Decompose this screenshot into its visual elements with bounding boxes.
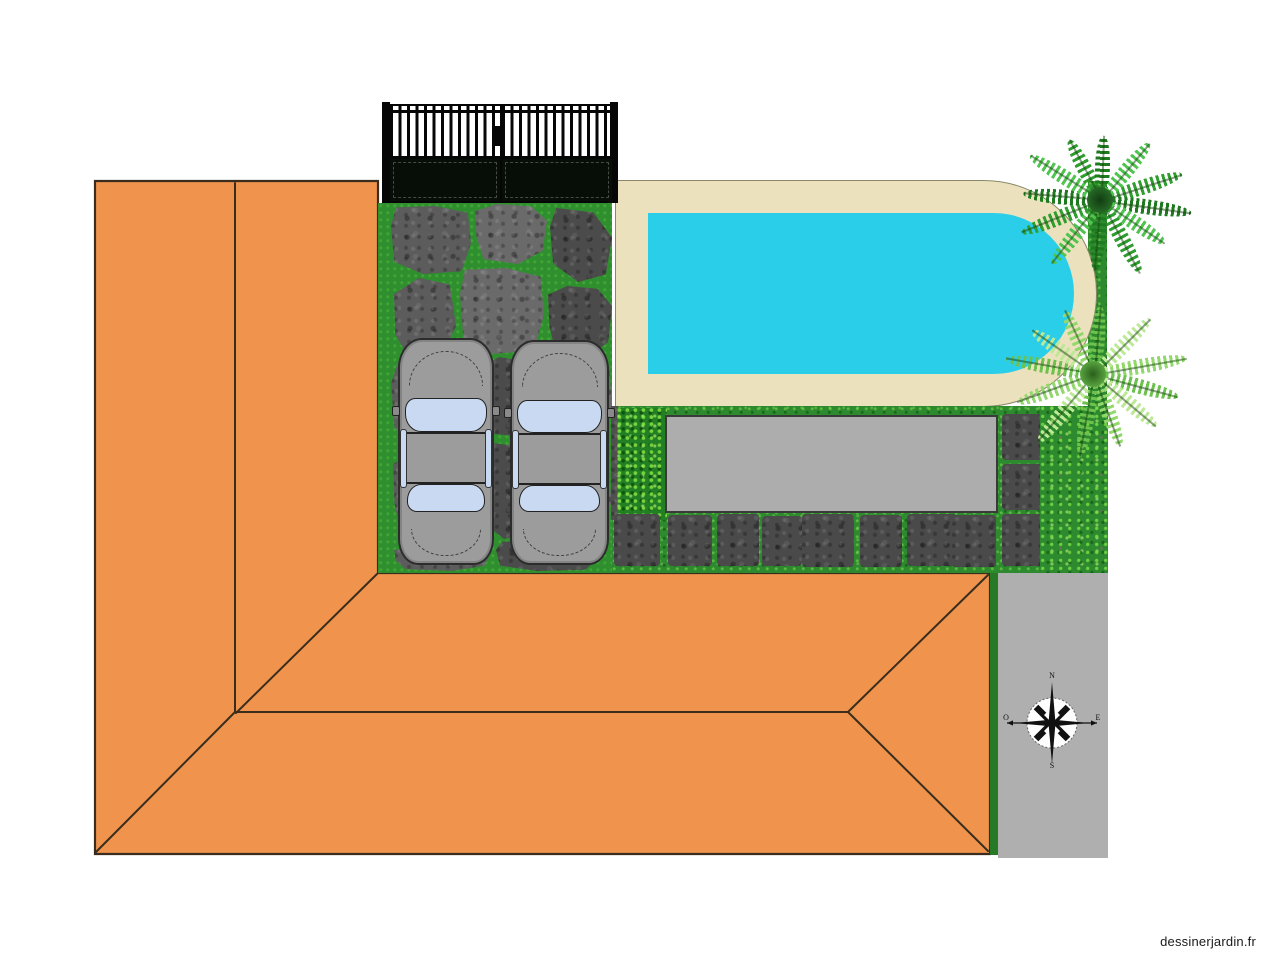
car-roof <box>407 432 486 484</box>
car-side-window <box>512 430 519 489</box>
gate-solid-panel <box>502 159 612 201</box>
stepping-stone <box>717 514 759 566</box>
gate-latch <box>494 126 505 146</box>
gate-bars <box>502 106 612 159</box>
car-roof <box>519 433 600 485</box>
flagstone <box>475 204 547 264</box>
car-windshield <box>517 400 602 434</box>
car-side-window <box>485 429 492 488</box>
gate-top-rail <box>388 110 612 113</box>
car-rear-window <box>407 484 486 511</box>
compass-south-label: S <box>1050 761 1054 768</box>
gate-solid-panel <box>390 159 500 201</box>
car-mirror <box>492 406 500 416</box>
stepping-stone <box>952 515 996 567</box>
hedge <box>617 408 667 520</box>
stepping-stone <box>907 514 957 566</box>
stepping-stone <box>802 514 854 567</box>
palm-trunk-top <box>1087 187 1113 213</box>
watermark: dessinerjardin.fr <box>1106 934 1256 949</box>
palm-tree-icon <box>1005 286 1195 478</box>
garden-plan: N S E O dessinerjardin.fr <box>0 0 1280 960</box>
palm-trunk-top <box>1080 361 1106 387</box>
car-side-window <box>400 429 407 488</box>
lawn-strip-right-of-house <box>990 573 998 855</box>
stepping-stone <box>668 515 712 566</box>
car-windshield <box>405 398 488 432</box>
terrace <box>665 415 998 513</box>
car-rear-window <box>519 485 600 512</box>
stepping-stone <box>1002 514 1044 566</box>
stepping-stone <box>860 515 902 567</box>
gate-left-panel <box>388 104 502 203</box>
gate-bars <box>390 106 500 159</box>
car-mirror <box>504 408 512 418</box>
compass-rose-icon: N S E O <box>1003 670 1101 768</box>
compass-north-label: N <box>1049 671 1055 680</box>
palm-tree-icon <box>1008 118 1186 290</box>
flagstone <box>391 206 471 274</box>
car <box>398 338 494 565</box>
car <box>510 340 609 565</box>
entrance-gate <box>382 102 618 204</box>
car-side-window <box>600 430 607 489</box>
car-mirror <box>607 408 615 418</box>
stepping-stone <box>614 514 660 566</box>
car-mirror <box>392 406 400 416</box>
stepping-stone <box>762 516 802 566</box>
flagstone <box>550 208 612 282</box>
compass-east-label: E <box>1096 713 1101 722</box>
gate-right-panel <box>500 104 614 203</box>
compass-west-label: O <box>1003 713 1009 722</box>
